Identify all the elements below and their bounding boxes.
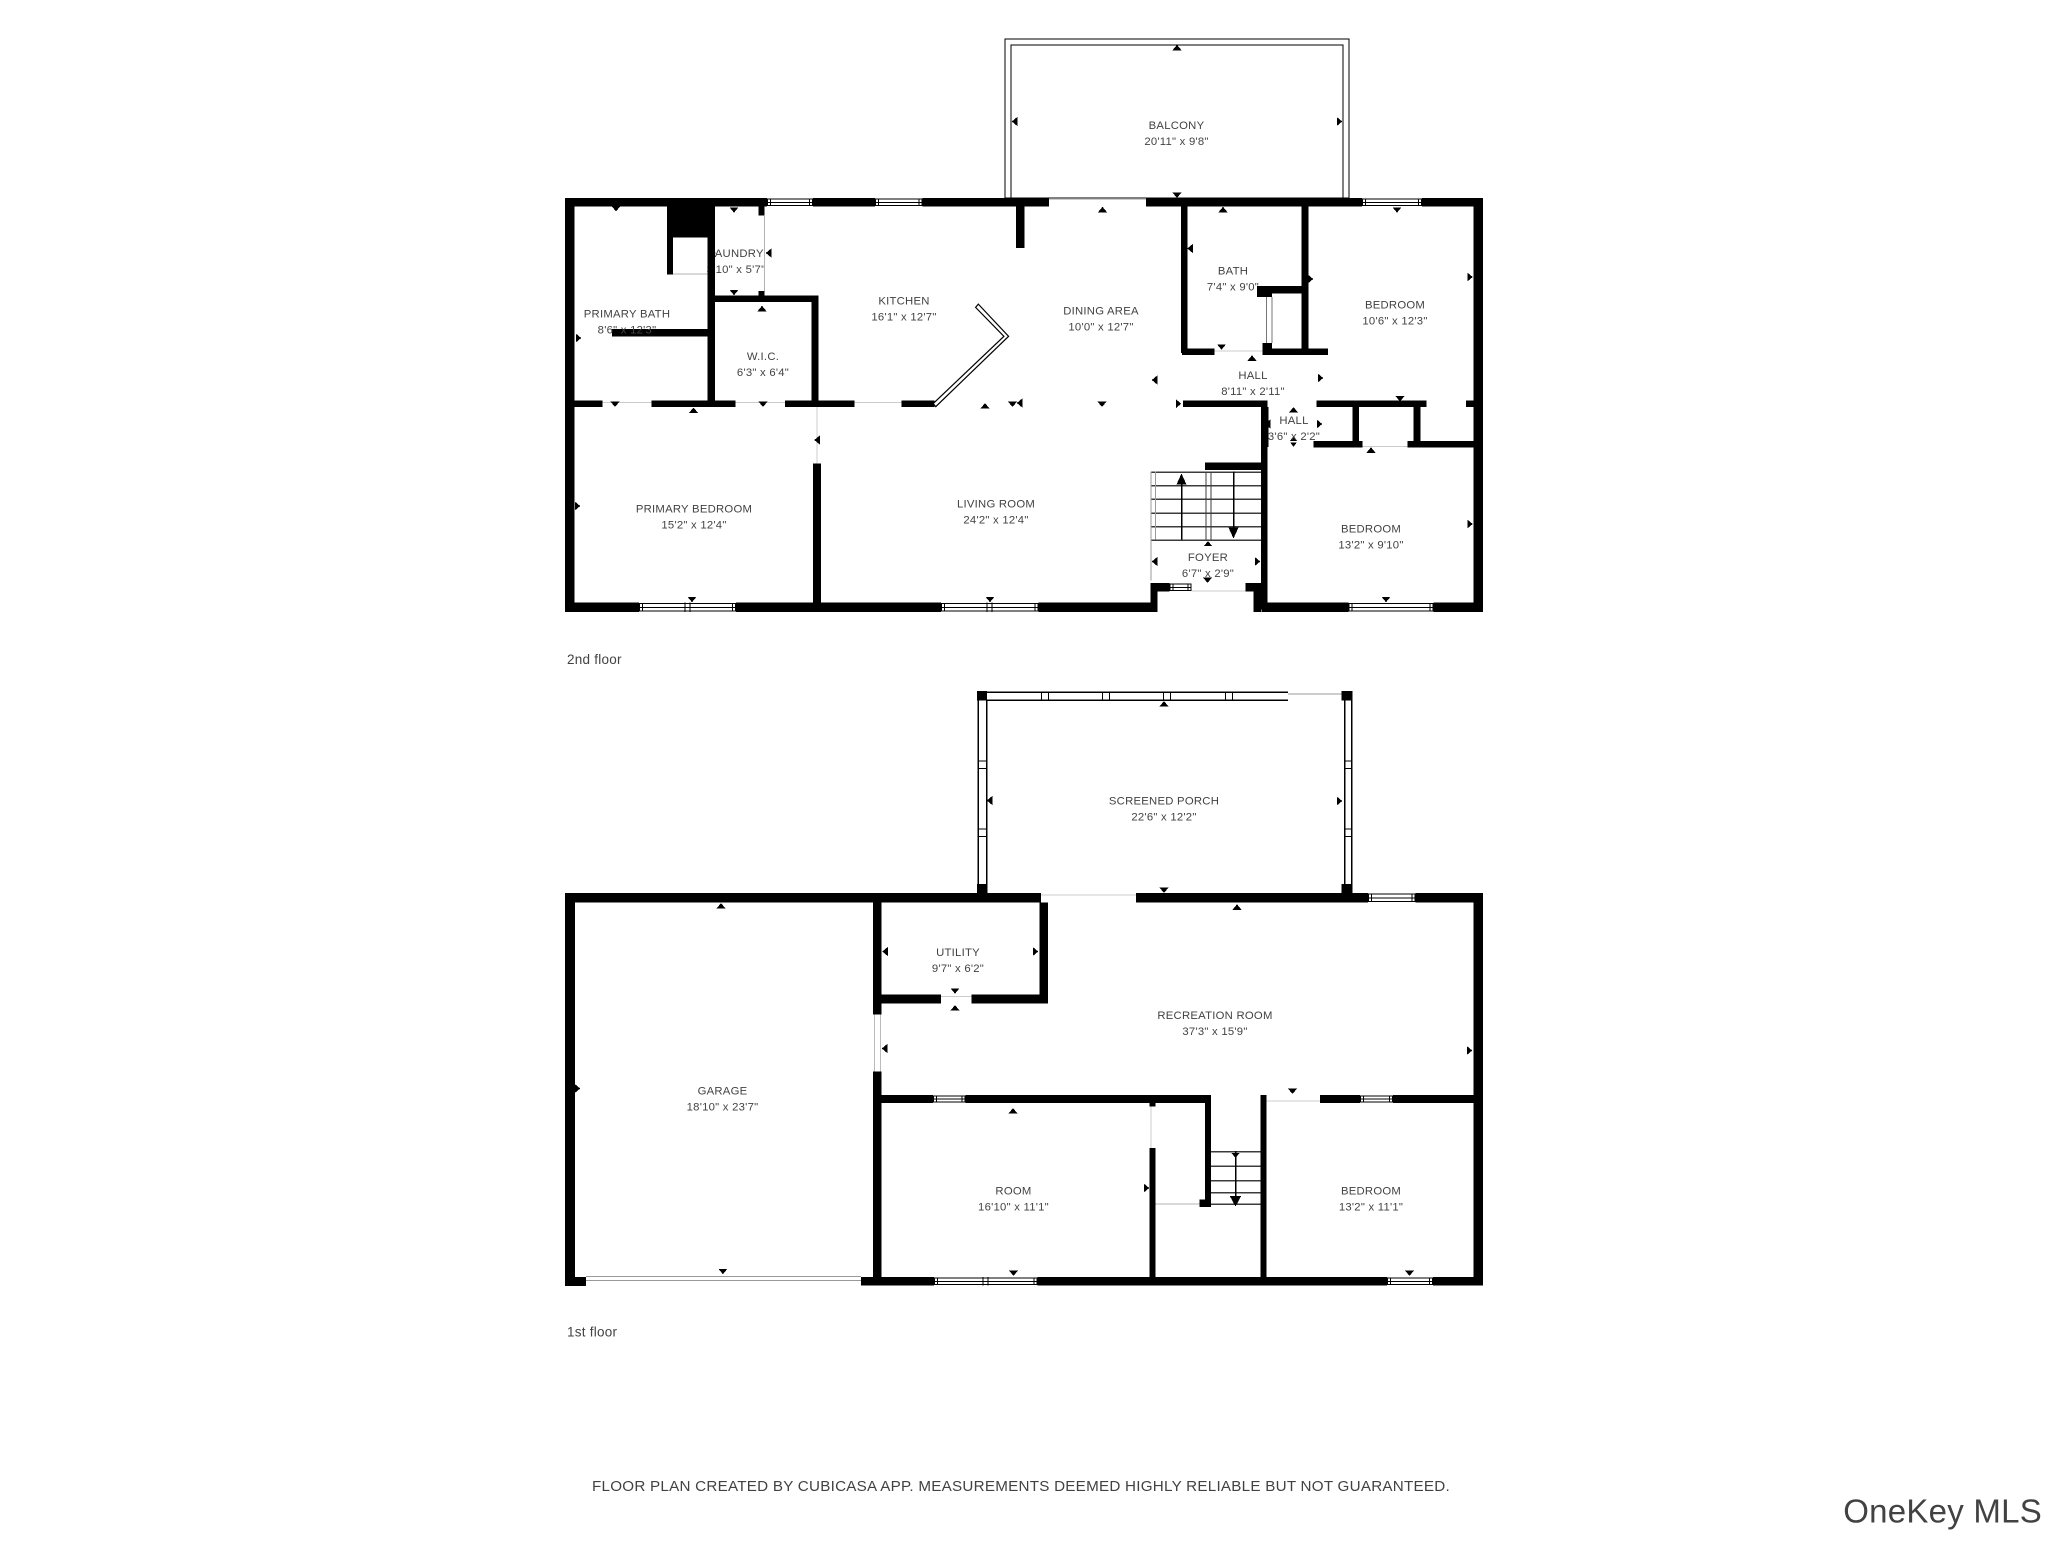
svg-text:BEDROOM: BEDROOM: [1341, 524, 1401, 536]
svg-text:BEDROOM: BEDROOM: [1365, 300, 1425, 312]
svg-text:PRIMARY BEDROOM: PRIMARY BEDROOM: [636, 504, 752, 516]
svg-text:10'6" x 12'3": 10'6" x 12'3": [1362, 316, 1427, 328]
svg-text:ROOM: ROOM: [995, 1186, 1031, 1198]
svg-text:LAUNDRY: LAUNDRY: [708, 248, 764, 260]
svg-text:FOYER: FOYER: [1188, 552, 1228, 564]
svg-text:DINING AREA: DINING AREA: [1063, 306, 1139, 318]
svg-text:37'3" x 15'9": 37'3" x 15'9": [1182, 1026, 1247, 1038]
svg-text:9'7" x 6'2": 9'7" x 6'2": [932, 963, 984, 975]
svg-text:10'0" x 12'7": 10'0" x 12'7": [1068, 322, 1133, 334]
svg-text:BATH: BATH: [1218, 266, 1248, 278]
svg-text:RECREATION ROOM: RECREATION ROOM: [1157, 1010, 1272, 1022]
svg-text:BALCONY: BALCONY: [1149, 120, 1205, 132]
svg-text:3'10" x 5'7": 3'10" x 5'7": [707, 264, 766, 276]
svg-text:15'2" x 12'4": 15'2" x 12'4": [661, 520, 726, 532]
svg-text:20'11" x 9'8": 20'11" x 9'8": [1144, 136, 1208, 148]
svg-text:16'1" x 12'7": 16'1" x 12'7": [871, 312, 936, 324]
svg-text:HALL: HALL: [1238, 370, 1267, 382]
svg-text:6'7" x 2'9": 6'7" x 2'9": [1182, 568, 1234, 580]
svg-text:3'6" x 2'2": 3'6" x 2'2": [1268, 431, 1320, 443]
svg-text:1st floor: 1st floor: [567, 1325, 618, 1340]
svg-text:SCREENED PORCH: SCREENED PORCH: [1109, 796, 1219, 808]
svg-text:2nd floor: 2nd floor: [567, 652, 622, 667]
svg-text:PRIMARY BATH: PRIMARY BATH: [584, 309, 671, 321]
svg-text:BEDROOM: BEDROOM: [1341, 1186, 1401, 1198]
svg-text:13'2" x 9'10": 13'2" x 9'10": [1338, 540, 1403, 552]
svg-text:LIVING ROOM: LIVING ROOM: [957, 499, 1035, 511]
svg-text:6'3" x 6'4": 6'3" x 6'4": [737, 367, 789, 379]
svg-text:24'2" x 12'4": 24'2" x 12'4": [963, 515, 1028, 527]
svg-text:7'4" x 9'0": 7'4" x 9'0": [1207, 282, 1259, 294]
svg-text:8'6" x 12'3": 8'6" x 12'3": [598, 325, 657, 337]
svg-text:GARAGE: GARAGE: [698, 1086, 748, 1098]
svg-text:18'10" x 23'7": 18'10" x 23'7": [687, 1102, 759, 1114]
svg-text:16'10" x 11'1": 16'10" x 11'1": [978, 1202, 1049, 1214]
svg-text:13'2" x 11'1": 13'2" x 11'1": [1339, 1202, 1403, 1214]
svg-text:HALL: HALL: [1279, 415, 1308, 427]
svg-text:FLOOR PLAN CREATED BY CUBICASA: FLOOR PLAN CREATED BY CUBICASA APP. MEAS…: [592, 1478, 1450, 1495]
svg-text:22'6" x 12'2": 22'6" x 12'2": [1131, 812, 1196, 824]
svg-text:KITCHEN: KITCHEN: [878, 296, 929, 308]
svg-text:W.I.C.: W.I.C.: [747, 351, 779, 363]
svg-text:8'11" x 2'11": 8'11" x 2'11": [1221, 386, 1285, 398]
svg-text:UTILITY: UTILITY: [936, 947, 980, 959]
svg-text:OneKey MLS: OneKey MLS: [1843, 1493, 2042, 1530]
